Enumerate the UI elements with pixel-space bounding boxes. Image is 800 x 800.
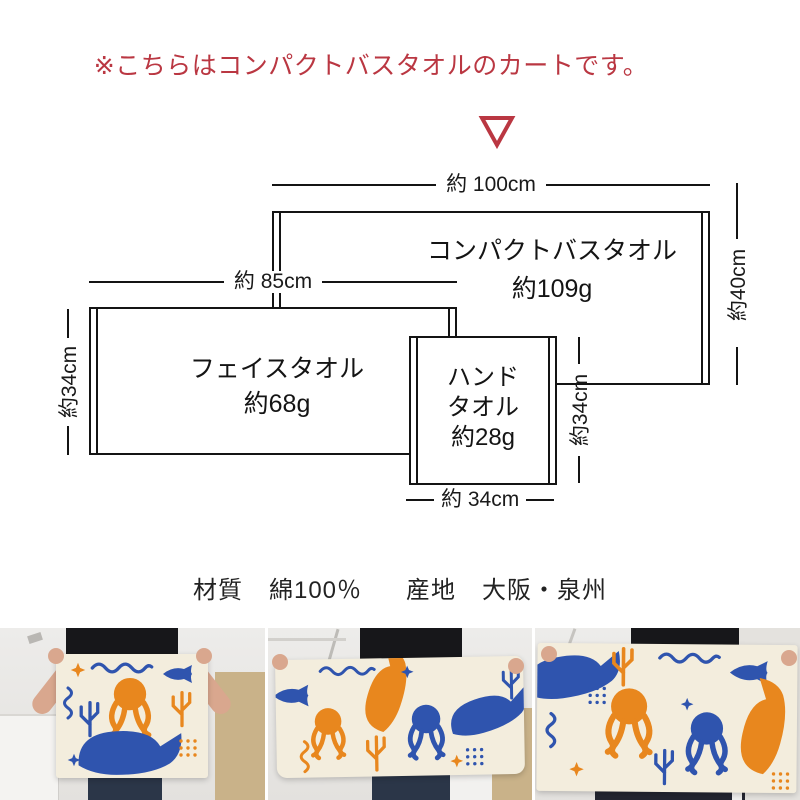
octopus-icon <box>409 705 443 759</box>
compact-width-dimension: 約 100cm <box>272 174 710 196</box>
person-hand <box>508 658 524 674</box>
dots-pattern <box>179 739 196 756</box>
down-triangle-icon <box>477 113 517 151</box>
dimension-line <box>526 499 554 501</box>
hand-towel-image <box>56 654 208 778</box>
dimension-line <box>272 184 436 186</box>
dimension-tick <box>67 426 69 455</box>
towel-hem-line <box>96 309 98 453</box>
towel-pattern-art <box>275 656 525 778</box>
towel-name: タオル <box>409 393 557 423</box>
towel-pattern-art <box>537 643 798 793</box>
octopus-icon <box>608 688 650 756</box>
towel-weight: 約68g <box>122 392 432 417</box>
hand-height-dimension: 約34cm <box>564 374 594 446</box>
starfish-icon <box>68 754 81 767</box>
coral-icon <box>656 751 673 784</box>
dimension-label: 約 34cm <box>434 489 526 511</box>
face-towel-image <box>275 656 525 778</box>
compact-height-dimension: 約40cm <box>722 249 752 321</box>
person-hand <box>48 648 64 664</box>
octopus-icon <box>111 678 148 738</box>
octopus-icon <box>312 708 344 758</box>
person-hand <box>272 654 288 670</box>
origin-label: 産地 <box>406 577 456 604</box>
compact-bath-towel-image <box>537 643 798 793</box>
wave-icon <box>92 664 151 672</box>
dots-pattern <box>772 772 790 790</box>
dimension-tick <box>578 337 580 364</box>
wall-bracket <box>27 632 43 644</box>
white-table <box>0 714 59 800</box>
whale-icon <box>79 731 182 775</box>
dimension-line <box>546 184 710 186</box>
material-value: 綿100％ <box>269 577 362 604</box>
photo-hand-towel <box>0 628 265 800</box>
coral-icon <box>367 737 384 770</box>
towel-name: フェイスタオル <box>122 357 432 382</box>
material-label: 材質 <box>193 577 243 604</box>
dimension-label: 約 100cm <box>436 174 546 196</box>
towel-name: コンパクトバスタオル <box>397 239 707 264</box>
towel-name: ハンド <box>409 363 557 393</box>
dots-pattern <box>589 687 607 705</box>
octopus-icon <box>688 712 726 773</box>
product-info-image: ※こちらはコンパクトバスタオルのカートです。 コンパクトバスタオル 約109g … <box>0 0 800 800</box>
face-height-dimension: 約34cm <box>53 346 83 418</box>
fish-icon <box>163 665 192 683</box>
face-towel-label: フェイスタオル 約68g <box>122 357 432 417</box>
photo-strip <box>0 628 800 800</box>
hand-width-dimension: 約 34cm <box>406 489 562 511</box>
hand-towel-label: ハンド タオル 約28g <box>409 363 557 453</box>
photo-compact-bath-towel <box>535 628 800 800</box>
dimension-tick <box>578 456 580 483</box>
cart-notice-text: ※こちらはコンパクトバスタオルのカートです。 <box>0 46 742 82</box>
towel-weight: 約28g <box>409 423 557 453</box>
wave-icon <box>320 667 374 675</box>
dimension-tick <box>67 309 69 338</box>
specs-line: 材質綿100％産地大阪・泉州 <box>0 570 800 605</box>
origin-value: 大阪・泉州 <box>482 577 607 604</box>
whale-icon <box>734 677 796 776</box>
seaweed-icon <box>301 742 309 772</box>
dimension-tick <box>736 183 738 239</box>
starfish-icon <box>450 755 463 768</box>
starfish-icon <box>71 663 85 677</box>
dots-pattern <box>466 748 484 766</box>
starfish-icon <box>681 698 694 711</box>
dimension-line <box>89 281 224 283</box>
wave-icon <box>660 654 719 662</box>
seaweed-icon <box>65 688 72 718</box>
person-hand <box>196 648 212 664</box>
fish-icon <box>275 685 309 707</box>
coral-icon <box>81 703 98 736</box>
face-width-dimension: 約 85cm <box>89 271 457 293</box>
dimension-line <box>322 281 457 283</box>
dimension-tick <box>736 347 738 385</box>
starfish-icon <box>570 762 585 777</box>
photo-face-towel <box>268 628 533 800</box>
dimension-line <box>406 499 434 501</box>
seaweed-icon <box>547 714 555 747</box>
coral-icon <box>173 693 190 726</box>
window-frame <box>268 638 346 641</box>
dimension-label: 約 85cm <box>224 271 322 293</box>
towel-pattern-art <box>56 654 208 778</box>
